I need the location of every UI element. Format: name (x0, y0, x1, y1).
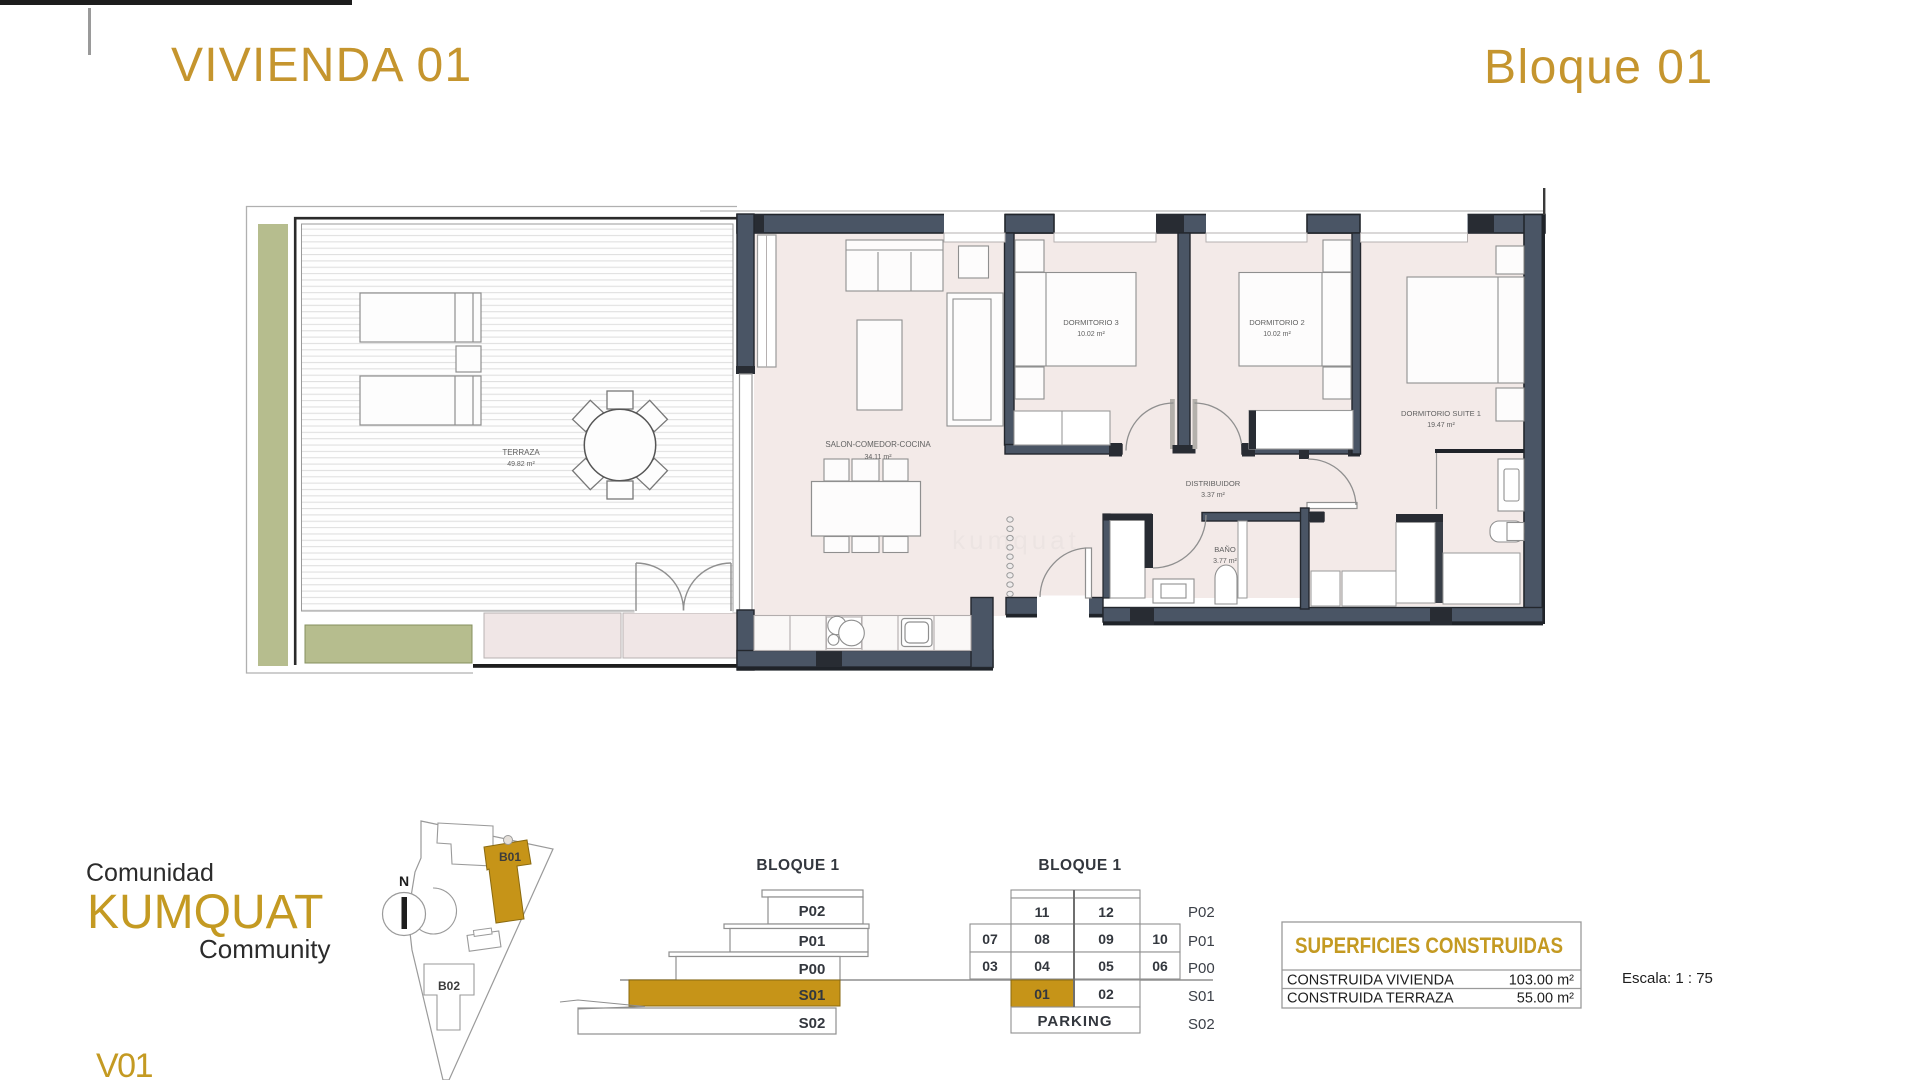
svg-text:04: 04 (1034, 958, 1050, 974)
svg-text:S02: S02 (1188, 1016, 1215, 1033)
svg-text:SUPERFICIES CONSTRUIDAS: SUPERFICIES CONSTRUIDAS (1295, 933, 1563, 958)
svg-text:Bloque 01: Bloque 01 (1484, 41, 1714, 94)
svg-text:DORMITORIO SUITE 1: DORMITORIO SUITE 1 (1401, 409, 1481, 418)
svg-text:BLOQUE 1: BLOQUE 1 (756, 857, 839, 874)
svg-text:PARKING: PARKING (1037, 1013, 1112, 1030)
svg-text:VIVIENDA 01: VIVIENDA 01 (171, 39, 472, 92)
svg-text:06: 06 (1152, 958, 1168, 974)
svg-text:P02: P02 (799, 903, 826, 920)
svg-text:S02: S02 (799, 1015, 826, 1032)
svg-text:49.82 m²: 49.82 m² (507, 461, 535, 468)
svg-text:103.00 m²: 103.00 m² (1509, 973, 1574, 989)
svg-text:DORMITORIO 2: DORMITORIO 2 (1249, 318, 1305, 327)
svg-text:S01: S01 (1188, 988, 1215, 1005)
svg-text:CONSTRUIDA VIVIENDA: CONSTRUIDA VIVIENDA (1287, 973, 1454, 989)
svg-text:Escala: 1 : 75: Escala: 1 : 75 (1622, 970, 1713, 987)
svg-text:07: 07 (982, 931, 998, 947)
svg-text:P01: P01 (799, 933, 826, 950)
svg-text:BAÑO: BAÑO (1214, 545, 1236, 554)
svg-text:P02: P02 (1188, 904, 1215, 921)
svg-text:TERRAZA: TERRAZA (502, 448, 540, 457)
svg-text:CONSTRUIDA TERRAZA: CONSTRUIDA TERRAZA (1287, 991, 1454, 1007)
svg-text:N: N (399, 873, 409, 889)
svg-text:10.02 m²: 10.02 m² (1263, 331, 1291, 338)
svg-text:3.77 m²: 3.77 m² (1213, 558, 1237, 565)
svg-text:10.02 m²: 10.02 m² (1077, 331, 1105, 338)
svg-text:55.00 m²: 55.00 m² (1517, 991, 1574, 1007)
svg-text:19.47 m²: 19.47 m² (1427, 422, 1455, 429)
svg-text:KUMQUAT: KUMQUAT (87, 886, 323, 939)
svg-text:S01: S01 (799, 987, 826, 1004)
svg-text:V01: V01 (96, 1047, 153, 1080)
svg-text:B01: B01 (499, 850, 521, 864)
svg-text:BLOQUE 1: BLOQUE 1 (1038, 857, 1121, 874)
svg-text:DISTRIBUIDOR: DISTRIBUIDOR (1186, 479, 1241, 488)
svg-text:P00: P00 (799, 961, 826, 978)
svg-text:34.11 m²: 34.11 m² (864, 454, 892, 461)
svg-text:SALON-COMEDOR-COCINA: SALON-COMEDOR-COCINA (825, 440, 931, 449)
svg-text:05: 05 (1098, 958, 1114, 974)
svg-text:Community: Community (199, 934, 330, 964)
svg-text:kumquat: kumquat (952, 525, 1080, 555)
svg-text:12: 12 (1098, 904, 1114, 920)
svg-text:10: 10 (1152, 931, 1168, 947)
svg-text:08: 08 (1034, 931, 1050, 947)
svg-text:P00: P00 (1188, 960, 1215, 977)
svg-text:B02: B02 (438, 979, 460, 993)
svg-text:3.37 m²: 3.37 m² (1201, 492, 1225, 499)
svg-text:02: 02 (1098, 986, 1114, 1002)
svg-text:09: 09 (1098, 931, 1114, 947)
svg-text:P01: P01 (1188, 933, 1215, 950)
svg-text:11: 11 (1035, 904, 1050, 920)
svg-text:Comunidad: Comunidad (86, 859, 214, 887)
svg-text:01: 01 (1034, 986, 1050, 1002)
svg-text:DORMITORIO 3: DORMITORIO 3 (1063, 318, 1119, 327)
svg-text:03: 03 (982, 958, 998, 974)
